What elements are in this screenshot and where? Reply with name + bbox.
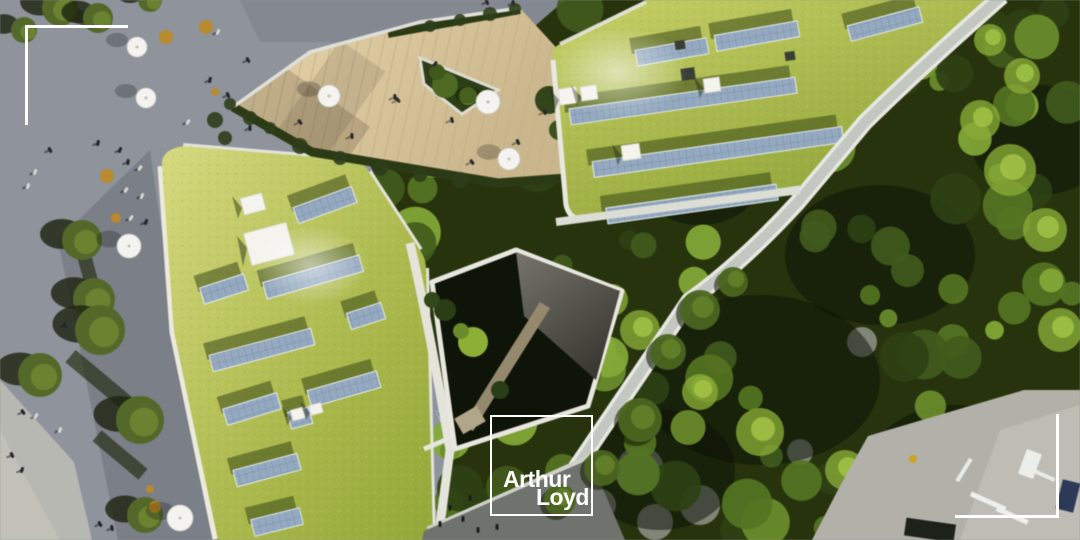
rooftop-unit	[703, 77, 721, 93]
person	[543, 109, 546, 115]
border-shrub	[224, 98, 236, 110]
tree	[879, 309, 897, 327]
border-shrub	[243, 111, 257, 125]
tree	[595, 455, 615, 475]
tree	[692, 296, 714, 318]
cafe-parasol	[146, 485, 154, 493]
sunlit-tree	[633, 317, 653, 337]
tree	[631, 232, 657, 258]
cafe-parasol	[199, 20, 213, 34]
sunlit-tree	[1000, 154, 1026, 180]
plaza-tree	[89, 317, 119, 347]
umbrella	[128, 245, 131, 248]
tree	[938, 274, 968, 304]
plaza-tree	[74, 230, 98, 254]
yellow-object	[909, 455, 917, 463]
umbrella	[179, 517, 182, 520]
aerial-site-render: Arthur Loyd	[0, 0, 1080, 540]
tree	[985, 321, 1004, 340]
border-shrub	[452, 172, 468, 188]
umbrella-shadow	[106, 33, 128, 47]
rooftop-unit	[621, 143, 641, 160]
roof-vent	[784, 51, 795, 61]
sunlit-tree	[973, 107, 993, 127]
arthur-loyd-logo: Arthur Loyd	[490, 415, 593, 516]
left-building	[162, 146, 433, 540]
umbrella	[508, 158, 511, 161]
tree	[799, 221, 830, 252]
logo-text-line2: Loyd	[536, 486, 589, 509]
umbrella	[136, 46, 139, 49]
plaza-tree	[93, 11, 111, 29]
tree	[738, 386, 763, 411]
cafe-parasol	[211, 88, 219, 96]
tree	[891, 254, 924, 287]
border-shrub	[424, 20, 436, 32]
border-shrub	[292, 138, 308, 154]
person	[449, 505, 452, 511]
border-shrub	[264, 122, 276, 134]
border-shrub	[207, 112, 223, 128]
sun-glare	[252, 225, 368, 305]
tree	[686, 224, 721, 259]
tree	[781, 460, 822, 501]
sunlit-tree	[751, 417, 775, 441]
border-shrub	[218, 131, 232, 145]
border-shrub	[509, 3, 521, 15]
umbrella	[328, 95, 331, 98]
person	[469, 495, 472, 501]
tree	[671, 410, 706, 445]
border-shrub	[483, 7, 497, 21]
border-shrub	[372, 160, 388, 176]
cafe-parasol	[111, 213, 121, 223]
sunlit-tree	[694, 380, 712, 398]
sunlit-tree	[1016, 64, 1034, 82]
tree	[1039, 268, 1063, 292]
tree	[1014, 14, 1059, 59]
tree	[930, 173, 981, 224]
umbrella-shadow	[477, 144, 501, 159]
umbrella	[487, 101, 490, 104]
tree	[998, 292, 1031, 325]
tree	[880, 332, 930, 382]
border-shrub	[454, 14, 466, 26]
cafe-parasol	[100, 169, 114, 183]
border-shrub	[413, 168, 427, 182]
person	[462, 516, 465, 522]
tree	[661, 339, 681, 359]
plaza-tree	[31, 364, 57, 390]
tree	[860, 285, 880, 305]
umbrella-shadow	[297, 81, 321, 96]
umbrella	[145, 97, 148, 100]
tree	[728, 271, 745, 288]
person	[350, 133, 353, 139]
person	[248, 125, 251, 131]
tree	[847, 215, 876, 244]
person	[439, 521, 442, 527]
umbrella-shadow	[115, 84, 137, 98]
tree	[631, 405, 655, 429]
sunlit-tree	[1052, 316, 1074, 338]
sunlit-tree	[1037, 216, 1059, 238]
plaza-tree	[20, 24, 36, 40]
tree	[722, 479, 772, 529]
sun-glare	[548, 26, 688, 118]
border-shrub	[333, 151, 347, 165]
tree	[939, 336, 982, 379]
person	[477, 527, 480, 533]
plaza-tree	[130, 408, 159, 437]
sunlit-tree	[985, 29, 1001, 45]
cafe-parasol	[159, 30, 173, 44]
person	[496, 524, 499, 530]
person	[126, 159, 130, 165]
